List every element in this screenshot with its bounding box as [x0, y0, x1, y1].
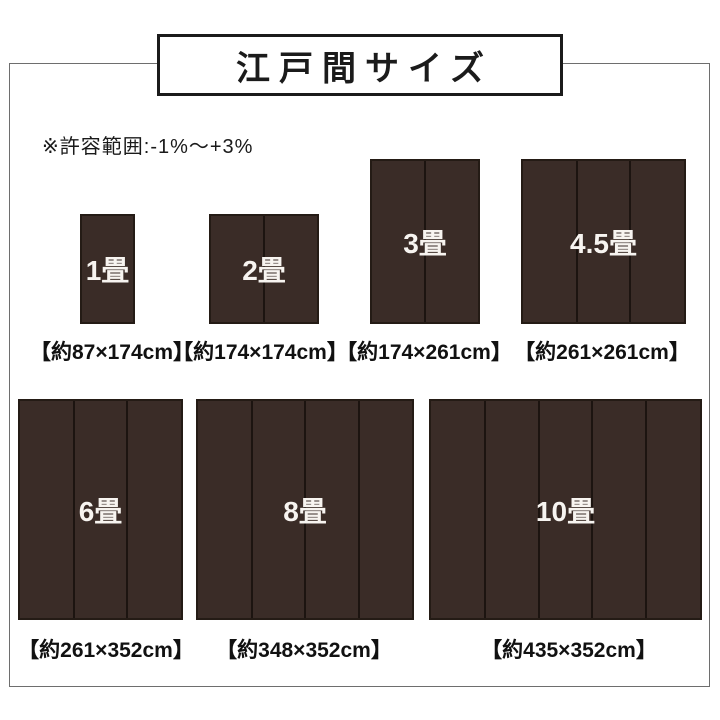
mat-2jo: 2畳 — [209, 214, 319, 324]
title-box: 江戸間サイズ — [157, 34, 563, 96]
mat-3jo-label: 3畳 — [403, 222, 447, 262]
mat-4-5jo-label: 4.5畳 — [570, 222, 637, 262]
panel-divider-line — [73, 401, 75, 618]
size-chart: 江戸間サイズ ※許容範囲:-1%〜+3% 1畳 2畳 3畳 4.5畳 【約87×… — [0, 0, 720, 720]
mat-8jo-dimensions: 【約348×352cm】 — [194, 634, 414, 664]
mat-2jo-label: 2畳 — [242, 249, 286, 289]
mat-10jo: 10畳 — [429, 399, 702, 620]
mat-10jo-label: 10畳 — [536, 490, 595, 530]
mat-4-5jo-dimensions: 【約261×261cm】 — [492, 336, 712, 366]
mat-6jo: 6畳 — [18, 399, 183, 620]
mat-10jo-dimensions: 【約435×352cm】 — [459, 634, 679, 664]
tolerance-note: ※許容範囲:-1%〜+3% — [42, 130, 253, 159]
panel-divider-line — [484, 401, 486, 618]
panel-divider-line — [251, 401, 253, 618]
mat-6jo-dimensions: 【約261×352cm】 — [0, 634, 216, 664]
mat-1jo-label: 1畳 — [86, 249, 130, 289]
mat-1jo: 1畳 — [80, 214, 135, 324]
mat-4-5jo: 4.5畳 — [521, 159, 686, 324]
page-title: 江戸間サイズ — [227, 41, 493, 90]
mat-8jo: 8畳 — [196, 399, 414, 620]
panel-divider-line — [358, 401, 360, 618]
mat-6jo-label: 6畳 — [79, 490, 123, 530]
mat-3jo: 3畳 — [370, 159, 480, 324]
mat-8jo-label: 8畳 — [283, 490, 327, 530]
panel-divider-line — [126, 401, 128, 618]
panel-divider-line — [645, 401, 647, 618]
